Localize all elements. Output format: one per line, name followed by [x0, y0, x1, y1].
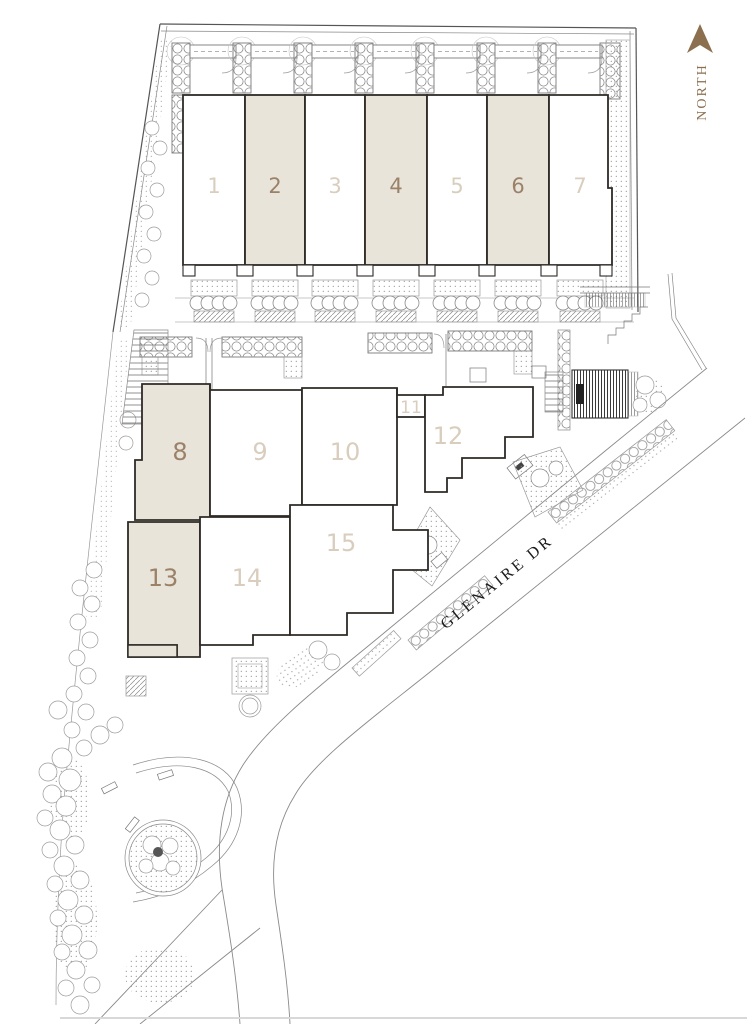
unit-11-label: 11	[400, 398, 422, 418]
unit-6-label: 6	[511, 174, 524, 198]
unit-12-label: 12	[433, 422, 464, 450]
site-plan: 1 2 3 4 5 6 7 8 9 10 11 12 13 14 15 GLEN…	[0, 0, 747, 1024]
unit-15-label: 15	[326, 529, 357, 557]
north-arrow-icon	[687, 24, 713, 53]
mid-planter-row	[140, 331, 546, 392]
unit-3-label: 3	[328, 174, 341, 198]
top-row-gardens	[190, 280, 603, 322]
unit-5-label: 5	[450, 174, 463, 198]
unit-14-label: 14	[232, 564, 263, 592]
north-indicator: NORTH	[687, 24, 713, 121]
unit-8-label: 8	[172, 438, 187, 466]
unit-7-label: 7	[573, 174, 586, 198]
north-label: NORTH	[695, 63, 710, 120]
unit-4-label: 4	[389, 174, 402, 198]
trellis-structure	[572, 370, 666, 418]
unit-1-label: 1	[207, 174, 220, 198]
party-wall-notches	[183, 265, 612, 276]
unit-10-label: 10	[330, 438, 361, 466]
site-plan-drawing: 1 2 3 4 5 6 7 8 9 10 11 12 13 14 15 GLEN…	[0, 0, 747, 1024]
unit-13-label: 13	[148, 564, 179, 592]
unit-2-label: 2	[268, 174, 281, 198]
unit-15-footprint[interactable]	[290, 505, 428, 635]
unit-13-notch	[128, 645, 177, 657]
unit-9-label: 9	[252, 438, 267, 466]
